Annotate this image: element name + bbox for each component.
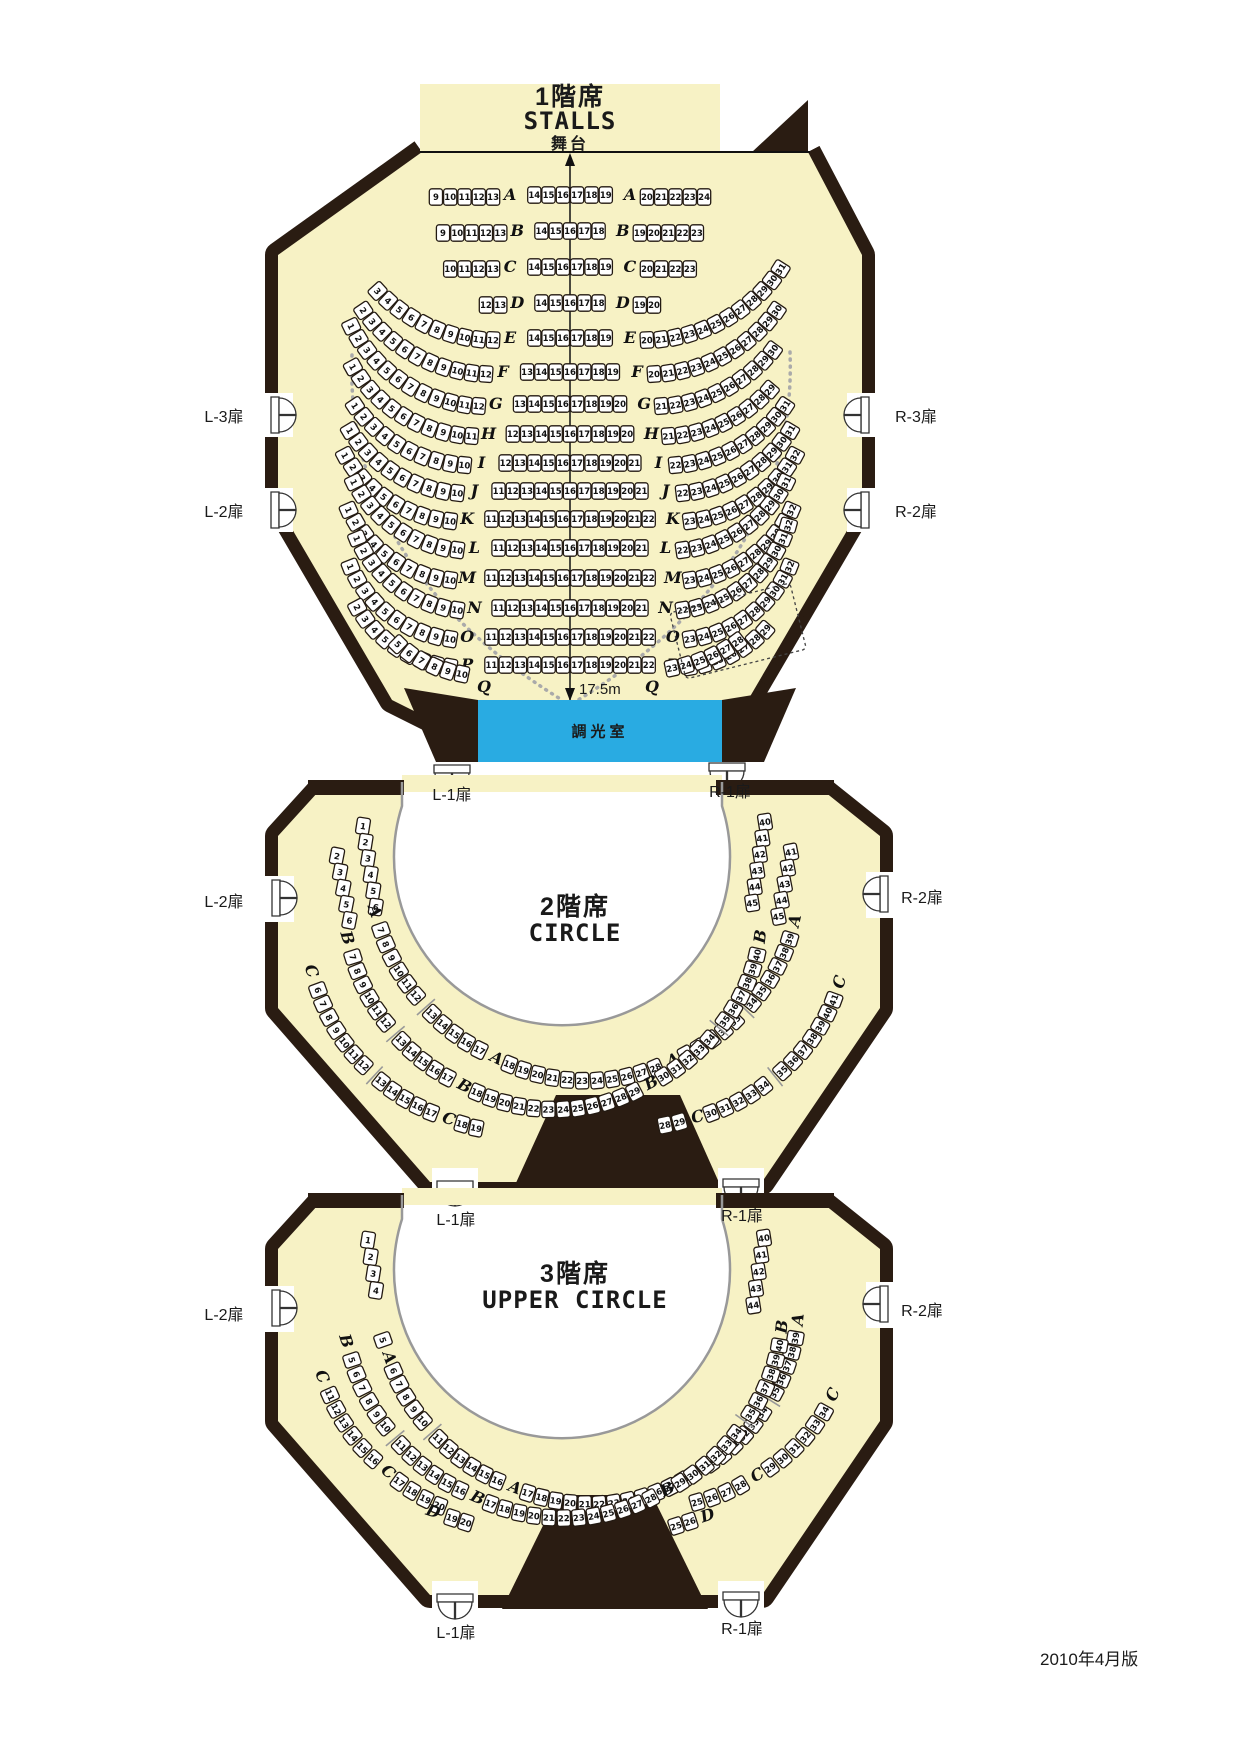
seat-O13: 13: [513, 629, 526, 645]
svg-text:10: 10: [443, 634, 456, 646]
seat-L17: 17: [578, 540, 591, 556]
seat-N18: 18: [592, 600, 605, 616]
seat-C13: 13: [487, 261, 500, 277]
seat-M23: 23: [682, 571, 698, 589]
svg-text:20: 20: [641, 193, 653, 203]
svg-text:21: 21: [662, 229, 674, 239]
seating-plan-svg: 141516171819AA13121110920212223241415161…: [0, 0, 1234, 1750]
seat-E11: 11: [471, 330, 486, 348]
svg-text:20: 20: [614, 661, 626, 671]
row-letter-A: A: [622, 185, 636, 204]
svg-text:21: 21: [543, 1513, 555, 1523]
svg-text:22: 22: [669, 400, 683, 412]
svg-text:23: 23: [691, 229, 703, 239]
row-letter-B: B: [750, 928, 771, 945]
svg-text:16: 16: [557, 574, 569, 584]
row-letter-H: H: [643, 424, 660, 443]
seat-B23: 23: [690, 225, 703, 241]
seat-B21: 21: [542, 1509, 556, 1526]
seat-L16: 16: [563, 540, 576, 556]
svg-text:14: 14: [535, 227, 547, 237]
svg-text:13: 13: [514, 574, 526, 584]
svg-text:20: 20: [648, 229, 660, 239]
svg-text:23: 23: [684, 265, 696, 275]
svg-text:20: 20: [614, 400, 626, 410]
seat-M16: 16: [556, 570, 569, 586]
seat-K20: 20: [614, 511, 627, 527]
svg-text:15: 15: [543, 459, 555, 469]
svg-text:19: 19: [600, 574, 612, 584]
svg-text:15: 15: [543, 334, 555, 344]
svg-text:18: 18: [593, 604, 605, 614]
svg-text:19: 19: [600, 400, 612, 410]
svg-text:12: 12: [507, 604, 519, 614]
seat-C28: 28: [657, 1116, 673, 1135]
seat-G15: 15: [542, 396, 555, 412]
row-letter-C: C: [624, 257, 637, 276]
svg-text:13: 13: [487, 265, 499, 275]
svg-text:12: 12: [500, 661, 512, 671]
seat-E17: 17: [571, 330, 584, 346]
seat-B17: 17: [578, 223, 591, 239]
seat-B40: 40: [747, 947, 766, 963]
seat-M14: 14: [528, 570, 541, 586]
seat-A45: 45: [744, 894, 760, 912]
svg-text:17: 17: [571, 400, 583, 410]
seat-J12: 12: [506, 483, 519, 499]
svg-text:10: 10: [451, 489, 464, 500]
seat-B18: 18: [592, 223, 605, 239]
seat-P11: 11: [485, 657, 498, 673]
svg-text:21: 21: [636, 604, 648, 614]
seat-A22: 22: [560, 1071, 574, 1088]
svg-text:20: 20: [614, 633, 626, 643]
seat-M20: 20: [614, 570, 627, 586]
svg-text:16: 16: [564, 544, 576, 554]
svg-text:17: 17: [571, 334, 583, 344]
seat-I10: 10: [457, 456, 472, 474]
svg-text:16: 16: [557, 661, 569, 671]
seat-M10: 10: [442, 571, 458, 589]
seat-J20: 20: [621, 483, 634, 499]
svg-text:14: 14: [528, 191, 540, 201]
svg-text:13: 13: [521, 368, 533, 378]
seat-B12: 12: [479, 225, 492, 241]
seat-A18: 18: [533, 1488, 550, 1507]
seat-L10: 10: [450, 541, 465, 559]
seat-A19: 19: [599, 187, 612, 203]
row-letter-M: M: [457, 568, 477, 587]
seat-F21: 21: [660, 364, 676, 382]
seat-J17: 17: [578, 483, 591, 499]
svg-text:10: 10: [451, 545, 464, 557]
seat-L21: 21: [635, 540, 648, 556]
svg-text:45: 45: [746, 898, 759, 910]
svg-text:23: 23: [572, 1513, 585, 1524]
svg-text:18: 18: [586, 515, 598, 525]
seat-B20: 20: [496, 1093, 513, 1112]
svg-text:16: 16: [564, 227, 576, 237]
seat-L19: 19: [606, 540, 619, 556]
row-letter-N: N: [466, 598, 483, 617]
svg-text:22: 22: [527, 1104, 540, 1115]
svg-text:15: 15: [543, 633, 555, 643]
row-letter-O: O: [460, 627, 474, 646]
seat-B41: 41: [783, 843, 799, 862]
seat-J18: 18: [592, 483, 605, 499]
svg-text:17: 17: [571, 661, 583, 671]
svg-text:10: 10: [443, 575, 456, 587]
svg-text:13: 13: [521, 604, 533, 614]
seat-B43: 43: [777, 875, 793, 894]
seat-N10: 10: [450, 601, 466, 619]
svg-text:19: 19: [600, 334, 612, 344]
svg-text:12: 12: [500, 574, 512, 584]
seat-K14: 14: [528, 511, 541, 527]
seat-C19: 19: [599, 259, 612, 275]
seat-B23: 23: [542, 1101, 555, 1117]
svg-text:11: 11: [459, 265, 471, 275]
seat-D19: 19: [633, 297, 646, 313]
seat-K12: 12: [499, 511, 512, 527]
svg-text:19: 19: [549, 1496, 562, 1508]
seat-O16: 16: [556, 629, 569, 645]
seat-O15: 15: [542, 629, 555, 645]
seat-O18: 18: [585, 629, 598, 645]
row-letter-A: A: [502, 185, 516, 204]
svg-text:15: 15: [550, 604, 562, 614]
circle-title-en: CIRCLE: [529, 919, 622, 947]
seat-L13: 13: [521, 540, 534, 556]
seat-A9: 9: [429, 189, 442, 205]
seat-O22: 22: [642, 629, 655, 645]
svg-text:19: 19: [607, 430, 619, 440]
lighting-room-label: 調光室: [571, 721, 628, 742]
seat-B40: 40: [770, 1338, 788, 1354]
svg-text:44: 44: [748, 882, 761, 894]
seat-A23: 23: [575, 1072, 588, 1089]
svg-text:41: 41: [756, 834, 769, 846]
seat-N13: 13: [521, 600, 534, 616]
seat-A4: 4: [363, 865, 379, 883]
theatre-seating-plan: 141516171819AA13121110920212223241415161…: [0, 0, 1234, 1750]
seat-A17: 17: [571, 187, 584, 203]
row-letter-G: G: [489, 394, 503, 413]
row-letter-L: L: [468, 538, 480, 557]
version-caption: 2010年4月版: [1040, 1645, 1138, 1670]
svg-text:19: 19: [607, 604, 619, 614]
svg-text:12: 12: [487, 336, 499, 347]
seat-O14: 14: [528, 629, 541, 645]
seat-P19: 19: [599, 657, 612, 673]
svg-text:10: 10: [444, 265, 456, 275]
seat-A15: 15: [542, 187, 555, 203]
svg-text:22: 22: [643, 574, 655, 584]
svg-text:13: 13: [514, 459, 526, 469]
row-letter-B: B: [615, 221, 630, 240]
svg-text:13: 13: [521, 544, 533, 554]
svg-text:13: 13: [514, 400, 526, 410]
seat-F20: 20: [647, 365, 661, 382]
svg-text:18: 18: [586, 633, 598, 643]
seat-J19: 19: [606, 483, 619, 499]
svg-text:13: 13: [521, 430, 533, 440]
svg-text:15: 15: [543, 400, 555, 410]
seat-H16: 16: [563, 426, 576, 442]
seat-F19: 19: [606, 364, 619, 380]
svg-text:21: 21: [655, 402, 668, 413]
svg-text:17: 17: [578, 227, 590, 237]
seat-N16: 16: [563, 600, 576, 616]
seat-B24: 24: [586, 1507, 602, 1526]
seat-A23: 23: [683, 189, 696, 205]
seat-G19: 19: [599, 396, 612, 412]
row-letter-Q: Q: [645, 677, 659, 696]
seat-F15: 15: [549, 364, 562, 380]
seat-C21: 21: [655, 261, 668, 277]
svg-text:17: 17: [578, 368, 590, 378]
seat-D15: 15: [549, 295, 562, 311]
seat-B21: 21: [662, 225, 675, 241]
row-letter-K: K: [665, 509, 681, 528]
svg-text:18: 18: [593, 487, 605, 497]
seat-A1: 1: [355, 817, 371, 835]
upper-door-l2: L-2扉: [204, 1301, 243, 1325]
seat-J11: 11: [492, 483, 505, 499]
svg-text:14: 14: [528, 515, 540, 525]
upper-door-l1: L-1扉: [436, 1619, 475, 1643]
seat-C20: 20: [640, 261, 653, 277]
seat-B14: 14: [535, 223, 548, 239]
seat-N20: 20: [621, 600, 634, 616]
seat-P14: 14: [528, 657, 541, 673]
svg-text:19: 19: [607, 487, 619, 497]
seat-N11: 11: [492, 600, 505, 616]
seat-A24: 24: [590, 1072, 605, 1090]
svg-text:14: 14: [535, 299, 547, 309]
svg-text:19: 19: [600, 191, 612, 201]
svg-text:23: 23: [683, 516, 696, 528]
svg-text:22: 22: [676, 488, 689, 499]
svg-text:16: 16: [557, 191, 569, 201]
seat-M22: 22: [642, 570, 655, 586]
seat-P17: 17: [571, 657, 584, 673]
seat-A20: 20: [563, 1494, 577, 1511]
seat-J16: 16: [563, 483, 576, 499]
svg-text:14: 14: [535, 544, 547, 554]
svg-text:16: 16: [564, 368, 576, 378]
row-letter-I: I: [654, 453, 663, 472]
seat-A40: 40: [756, 1229, 772, 1247]
svg-text:21: 21: [662, 368, 675, 380]
seat-O19: 19: [599, 629, 612, 645]
seat-H14: 14: [535, 426, 548, 442]
seat-L11: 11: [492, 540, 505, 556]
svg-text:13: 13: [494, 301, 506, 311]
seat-O17: 17: [571, 629, 584, 645]
seat-L12: 12: [506, 540, 519, 556]
svg-text:12: 12: [500, 515, 512, 525]
svg-text:39: 39: [791, 1331, 803, 1344]
seat-C23: 23: [683, 261, 696, 277]
seat-H11: 11: [464, 427, 479, 444]
svg-text:11: 11: [465, 368, 478, 380]
seat-K13: 13: [513, 511, 526, 527]
seat-O11: 11: [485, 629, 498, 645]
seat-O21: 21: [628, 629, 641, 645]
svg-text:40: 40: [775, 1339, 787, 1352]
svg-text:11: 11: [493, 604, 505, 614]
svg-text:12: 12: [507, 430, 519, 440]
svg-text:20: 20: [621, 544, 633, 554]
svg-text:20: 20: [641, 336, 653, 347]
svg-text:16: 16: [557, 263, 569, 273]
svg-text:21: 21: [662, 432, 675, 443]
svg-text:20: 20: [621, 604, 633, 614]
svg-text:23: 23: [576, 1077, 588, 1087]
seat-I18: 18: [585, 455, 598, 471]
row-letter-F: F: [496, 362, 510, 381]
svg-text:21: 21: [546, 1073, 559, 1085]
svg-text:18: 18: [593, 299, 605, 309]
svg-text:18: 18: [586, 459, 598, 469]
svg-text:18: 18: [586, 263, 598, 273]
svg-text:44: 44: [747, 1301, 760, 1313]
seat-F17: 17: [578, 364, 591, 380]
row-letter-H: H: [480, 424, 497, 443]
svg-text:20: 20: [648, 301, 660, 311]
svg-text:18: 18: [586, 191, 598, 201]
seat-C19: 19: [468, 1119, 484, 1138]
seat-A40: 40: [757, 813, 773, 831]
svg-text:12: 12: [507, 544, 519, 554]
svg-text:16: 16: [557, 459, 569, 469]
svg-text:12: 12: [473, 193, 485, 203]
seat-P21: 21: [628, 657, 641, 673]
stalls-door-l2: L-2扉: [204, 498, 243, 522]
stalls-door-r3: R-3扉: [895, 403, 937, 427]
svg-text:12: 12: [473, 265, 485, 275]
svg-text:21: 21: [655, 335, 668, 347]
row-letter-G: G: [637, 394, 651, 413]
seat-I13: 13: [513, 455, 526, 471]
svg-text:13: 13: [514, 515, 526, 525]
seat-F11: 11: [464, 364, 480, 382]
svg-text:18: 18: [586, 334, 598, 344]
seat-A44: 44: [746, 1296, 762, 1314]
seat-P22: 22: [642, 657, 655, 673]
seat-H19: 19: [606, 426, 619, 442]
seat-M18: 18: [585, 570, 598, 586]
seat-B3: 3: [332, 863, 348, 882]
seat-B22: 22: [526, 1100, 540, 1117]
row-letter-M: M: [663, 568, 683, 587]
row-letter-N: N: [657, 598, 674, 617]
seat-P20: 20: [614, 657, 627, 673]
seat-B16: 16: [563, 223, 576, 239]
seat-J21: 21: [635, 483, 648, 499]
svg-text:20: 20: [527, 1511, 540, 1522]
seat-G21: 21: [654, 397, 669, 414]
svg-text:23: 23: [683, 575, 696, 587]
seat-B2: 2: [329, 847, 345, 866]
svg-text:16: 16: [564, 487, 576, 497]
svg-text:14: 14: [528, 661, 540, 671]
seat-I22: 22: [668, 456, 683, 474]
seat-A20: 20: [640, 189, 653, 205]
svg-text:18: 18: [586, 400, 598, 410]
seat-I14: 14: [528, 455, 541, 471]
seat-B23: 23: [571, 1509, 586, 1527]
svg-text:20: 20: [564, 1499, 577, 1510]
svg-text:17: 17: [571, 263, 583, 273]
svg-text:17: 17: [578, 487, 590, 497]
seat-L20: 20: [621, 540, 634, 556]
seat-A13: 13: [487, 189, 500, 205]
seat-B44: 44: [774, 891, 790, 910]
svg-text:22: 22: [670, 193, 682, 203]
seat-H20: 20: [621, 426, 634, 442]
seat-I20: 20: [613, 455, 626, 471]
svg-text:12: 12: [500, 459, 512, 469]
seat-A3: 3: [365, 1264, 381, 1282]
seat-A22: 22: [669, 189, 682, 205]
svg-text:21: 21: [655, 265, 667, 275]
svg-text:25: 25: [606, 1074, 619, 1086]
seat-B21: 21: [511, 1097, 527, 1115]
seat-C22: 22: [669, 261, 682, 277]
seat-K23: 23: [682, 512, 697, 530]
seat-B22: 22: [676, 225, 689, 241]
seat-B22: 22: [557, 1510, 571, 1527]
seat-D20: 20: [647, 297, 660, 313]
svg-text:10: 10: [451, 605, 464, 617]
svg-text:19: 19: [600, 661, 612, 671]
svg-text:10: 10: [443, 516, 456, 528]
svg-text:22: 22: [558, 1514, 570, 1524]
svg-text:24: 24: [698, 193, 710, 203]
seat-E16: 16: [556, 330, 569, 346]
svg-text:17: 17: [578, 299, 590, 309]
upper-title-jp: 3階席: [540, 1254, 610, 1290]
seat-B15: 15: [549, 223, 562, 239]
seat-B42: 42: [780, 859, 796, 878]
upper-door-r2: R-2扉: [901, 1297, 943, 1321]
svg-text:16: 16: [557, 334, 569, 344]
svg-text:16: 16: [564, 604, 576, 614]
seat-B4: 4: [335, 879, 351, 898]
svg-text:14: 14: [535, 604, 547, 614]
seat-J14: 14: [535, 483, 548, 499]
svg-text:21: 21: [628, 633, 640, 643]
svg-text:12: 12: [500, 633, 512, 643]
circle-title-jp: 2階席: [540, 887, 610, 923]
svg-text:11: 11: [485, 574, 497, 584]
seat-D14: 14: [535, 295, 548, 311]
seat-B20: 20: [526, 1507, 541, 1525]
circle-door-l1: L-1扉: [436, 1206, 475, 1230]
row-letter-I: I: [477, 453, 486, 472]
seat-C17: 17: [571, 259, 584, 275]
seat-M15: 15: [542, 570, 555, 586]
seat-I17: 17: [571, 455, 584, 471]
seat-N17: 17: [578, 600, 591, 616]
svg-text:14: 14: [528, 334, 540, 344]
svg-text:9: 9: [433, 193, 439, 203]
seat-C12: 12: [472, 261, 485, 277]
seat-E14: 14: [528, 330, 541, 346]
svg-text:21: 21: [628, 661, 640, 671]
